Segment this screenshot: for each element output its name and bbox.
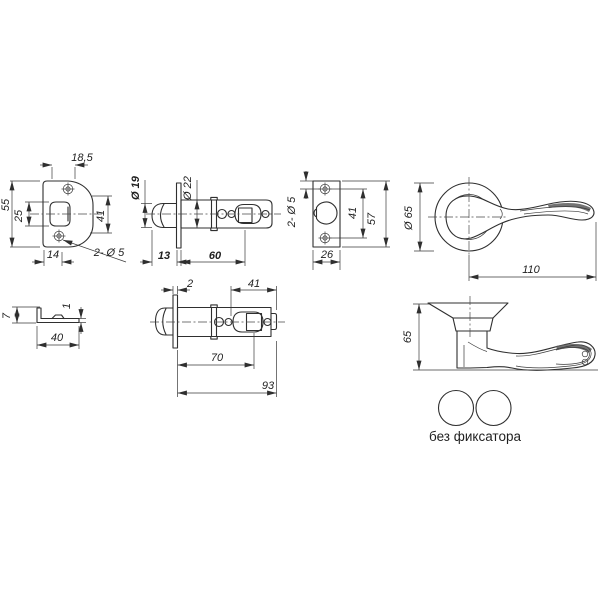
knob-circle-right: [476, 391, 511, 426]
dim-strike-cutout-height: 25: [13, 209, 25, 223]
latch-top-view: Ø 19 Ø 22 13 60: [130, 175, 281, 266]
knob-circle-left: [439, 391, 474, 426]
dim-total-length: 93: [262, 380, 275, 392]
strike-plate-side-view: 7 1 40: [1, 303, 86, 349]
latch-side-view: 2 41 70 93: [150, 278, 285, 397]
dim-strike-side-height: 41: [95, 210, 107, 222]
dim-head-length: 13: [158, 250, 170, 262]
screw-hole-top: [319, 183, 332, 196]
door-handle-technical-drawing: 18,5 55 25 41 14 2- Ø 5 Ø 19: [0, 0, 600, 600]
lever-front: [446, 196, 594, 239]
handle-side-view: 65: [402, 296, 598, 370]
lever-side: [457, 331, 595, 370]
screw-hole-bottom: [319, 232, 332, 245]
faceplate-front-view: 2- Ø 5 41 57 26: [286, 171, 390, 270]
dim-faceplate-hole-spacing: 41: [347, 207, 359, 219]
screw-hole-top: [62, 183, 75, 196]
dim-strike-height: 55: [0, 198, 12, 211]
dim-lever-length: 110: [522, 264, 540, 276]
dim-strike-width-top: 18,5: [71, 152, 93, 164]
strike-plate-front-view: 18,5 55 25 41 14 2- Ø 5: [0, 152, 126, 266]
dim-faceplate-height: 57: [366, 212, 378, 225]
rose-side: [428, 303, 508, 318]
variant-indicator: без фиксатора: [429, 391, 521, 445]
variant-label: без фиксатора: [429, 429, 521, 444]
dim-plate-thickness: 1: [61, 303, 73, 309]
dim-tip-length: 41: [248, 278, 260, 290]
label-strike-holes: 2- Ø 5: [93, 247, 125, 259]
dim-bolt-diameter: Ø 19: [130, 175, 142, 200]
dim-faceplate-thickness: 2: [186, 278, 193, 290]
dim-handle-height: 65: [402, 330, 414, 343]
handle-front-view: Ø 65 110: [403, 177, 596, 281]
dim-tube-diameter: Ø 22: [182, 176, 194, 201]
label-faceplate-holes: 2- Ø 5: [286, 196, 298, 228]
dim-backset: 70: [211, 352, 224, 364]
dim-tube-length: 60: [209, 250, 222, 262]
dim-strike-width-bottom: 14: [47, 249, 59, 261]
dim-faceplate-width: 26: [320, 249, 334, 261]
dim-plate-length: 40: [51, 332, 64, 344]
technical-drawing-page: 18,5 55 25 41 14 2- Ø 5 Ø 19: [0, 0, 600, 600]
dim-rose-diameter: Ø 65: [403, 205, 415, 231]
dim-lip-height: 7: [1, 312, 13, 319]
rose-neck: [453, 318, 493, 331]
